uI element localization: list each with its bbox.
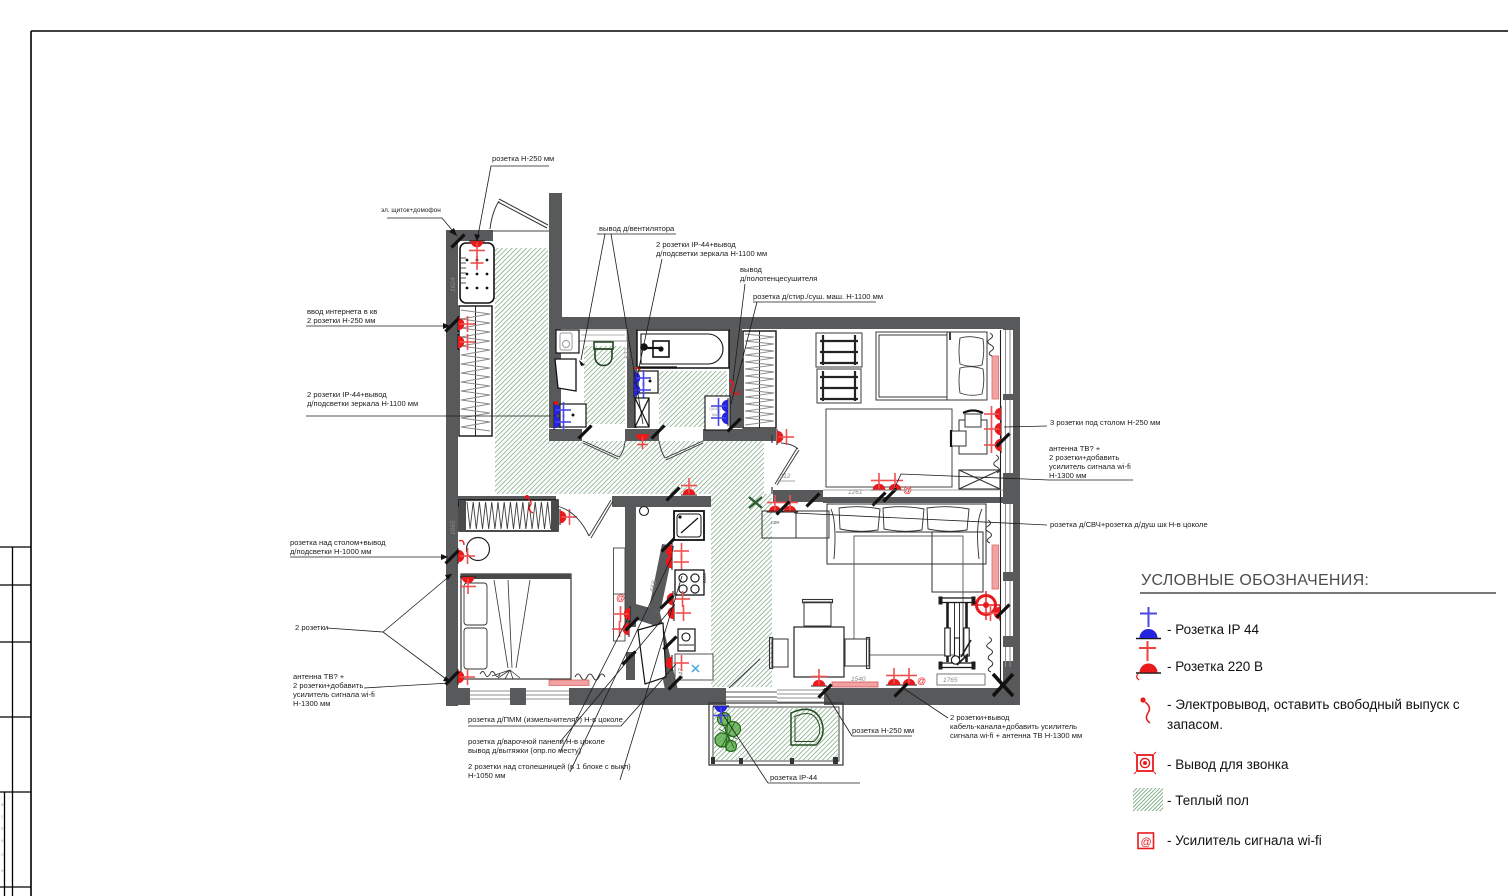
svg-text:УСЛОВНЫЕ ОБОЗНАЧЕНИЯ:: УСЛОВНЫЕ ОБОЗНАЧЕНИЯ: xyxy=(1141,572,1369,589)
svg-text:- Розетка IP 44: - Розетка IP 44 xyxy=(1167,622,1260,637)
svg-text:вывод д/вентилятора: вывод д/вентилятора xyxy=(599,224,675,233)
svg-text:ввод интернета в кв: ввод интернета в кв xyxy=(307,307,377,316)
svg-text:2 розетки над столешницей (в 1: 2 розетки над столешницей (в 1 блоке с в… xyxy=(468,762,631,771)
svg-text:@: @ xyxy=(917,676,926,686)
svg-text:д/подсветки Н-1000 мм: д/подсветки Н-1000 мм xyxy=(290,547,371,556)
svg-text:усилитель сигнала wi-fi: усилитель сигнала wi-fi xyxy=(1049,462,1131,471)
svg-text:розетка д/ПММ (измельчителя?): розетка д/ПММ (измельчителя?) Н-в цоколе xyxy=(468,715,623,724)
svg-text:- Теплый пол: - Теплый пол xyxy=(1167,793,1249,808)
svg-text:2 розетки+добавить: 2 розетки+добавить xyxy=(293,681,363,690)
svg-text:сигнала wi-fi + антенна ТВ Н-1: сигнала wi-fi + антенна ТВ Н-1300 мм xyxy=(950,731,1082,740)
svg-text:2 розетки: 2 розетки xyxy=(295,623,328,632)
svg-text:вывод д/вытяжки (опр.по месту): вывод д/вытяжки (опр.по месту) xyxy=(468,746,582,755)
svg-text:эл. щиток+домофон: эл. щиток+домофон xyxy=(381,207,441,214)
svg-text:розетка д/стир./суш. маш. Н-11: розетка д/стир./суш. маш. Н-1100 мм xyxy=(753,292,883,301)
svg-text:2 розетки+вывод: 2 розетки+вывод xyxy=(950,713,1010,722)
svg-text:2 розетки Н-250 мм: 2 розетки Н-250 мм xyxy=(307,316,375,325)
svg-text:1624: 1624 xyxy=(450,277,457,292)
svg-text:розетка д/варочной панели Н-в: розетка д/варочной панели Н-в цоколе xyxy=(468,737,605,746)
svg-text:д/подсветки зеркала Н-1100 мм: д/подсветки зеркала Н-1100 мм xyxy=(307,399,418,408)
svg-text:- Вывод для звонка: - Вывод для звонка xyxy=(1167,757,1289,772)
svg-text:3 розетки под столом Н-250 мм: 3 розетки под столом Н-250 мм xyxy=(1050,418,1160,427)
svg-text:СВЧ: СВЧ xyxy=(771,520,780,525)
svg-text:2 розетки+добавить: 2 розетки+добавить xyxy=(1049,453,1119,462)
svg-text:розетка над столом+вывод: розетка над столом+вывод xyxy=(290,538,386,547)
svg-text:маш: маш xyxy=(712,412,721,417)
svg-text:0000: 0000 xyxy=(702,573,707,584)
svg-text:1065: 1065 xyxy=(450,520,457,535)
svg-text:@: @ xyxy=(616,593,625,603)
svg-text:л: л xyxy=(1,852,4,857)
svg-text:- Розетка 220 В: - Розетка 220 В xyxy=(1167,659,1263,674)
svg-text:усилитель сигнала wi-fi: усилитель сигнала wi-fi xyxy=(293,690,375,699)
svg-text:кабель-канала+добавить усилите: кабель-канала+добавить усилитель xyxy=(950,722,1077,731)
svg-text:- Усилитель сигнала wi-fi: - Усилитель сигнала wi-fi xyxy=(1167,833,1322,848)
svg-text:2 розетки IP-44+вывод: 2 розетки IP-44+вывод xyxy=(307,390,387,399)
svg-text:розетка д/СВЧ+розетка д/душ шк: розетка д/СВЧ+розетка д/душ шк Н-в цокол… xyxy=(1050,520,1208,529)
svg-text:д/полотенцесушителя: д/полотенцесушителя xyxy=(740,274,817,283)
svg-text:антенна ТВ? +: антенна ТВ? + xyxy=(293,672,345,681)
svg-text:Н-1050 мм: Н-1050 мм xyxy=(468,771,505,780)
svg-text:Н-1300 мм: Н-1300 мм xyxy=(1049,471,1086,480)
svg-text:622: 622 xyxy=(624,348,631,359)
svg-text:@: @ xyxy=(1141,837,1152,849)
svg-text:запасом.: запасом. xyxy=(1167,717,1223,732)
svg-text:розетка Н-250 мм: розетка Н-250 мм xyxy=(492,154,554,163)
svg-text:антенна ТВ? +: антенна ТВ? + xyxy=(1049,444,1101,453)
svg-text:розетка IP-44: розетка IP-44 xyxy=(770,773,817,782)
svg-text:розетка Н-250 мм: розетка Н-250 мм xyxy=(852,726,914,735)
svg-text:- Электровывод, оставить свобо: - Электровывод, оставить свободный выпус… xyxy=(1167,697,1460,712)
svg-text:112: 112 xyxy=(780,473,791,480)
svg-text:д/подсветки зеркала Н-1100 мм: д/подсветки зеркала Н-1100 мм xyxy=(656,249,767,258)
svg-text:2 розетки IP-44+вывод: 2 розетки IP-44+вывод xyxy=(656,240,736,249)
svg-text:вывод: вывод xyxy=(740,265,762,274)
svg-text:Н-1300 мм: Н-1300 мм xyxy=(293,699,330,708)
svg-text:1765: 1765 xyxy=(943,677,958,684)
